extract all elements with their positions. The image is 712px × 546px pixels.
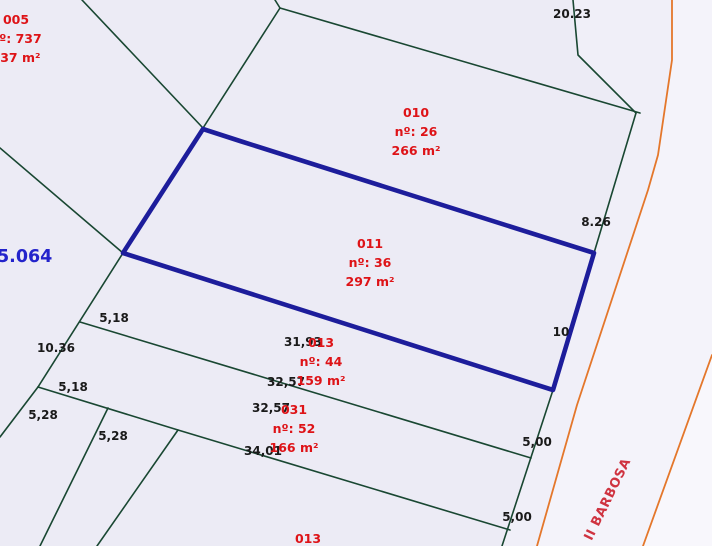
parcel-label-011[interactable]: 011nº: 36297 m²: [346, 234, 395, 291]
parcel-number: nº: 44: [297, 352, 346, 371]
parcel-label-013[interactable]: 013: [295, 529, 321, 546]
parcel-area: 266 m²: [392, 141, 441, 160]
measurement-label: 5,18: [58, 380, 88, 394]
parcel-number: nº: 737: [0, 29, 42, 48]
parcel-label-013[interactable]: 013nº: 44159 m²: [297, 333, 346, 390]
parcel-code: 013: [297, 333, 346, 352]
measurement-label: 5,28: [98, 429, 128, 443]
measurement-label: 20.23: [553, 7, 591, 21]
parcel-number: nº: 26: [392, 122, 441, 141]
measurement-label: 5,00: [502, 510, 532, 524]
parcel-number: nº: 36: [346, 253, 395, 272]
parcel-number: nº: 52: [270, 419, 319, 438]
parcel-code: 010: [392, 103, 441, 122]
map-labels-layer: 20.238.26105,1810.365,185,285,2831,9332,…: [0, 0, 712, 546]
measurement-label: 8.26: [581, 215, 611, 229]
map-canvas[interactable]: 20.238.26105,1810.365,185,285,2831,9332,…: [0, 0, 712, 546]
measurement-label: 5,18: [99, 311, 129, 325]
parcel-code: 005: [0, 10, 42, 29]
measurement-label: 10: [553, 325, 570, 339]
parcel-area: 297 m²: [346, 272, 395, 291]
measurement-label: 5,00: [522, 435, 552, 449]
parcel-label-010[interactable]: 010nº: 26266 m²: [392, 103, 441, 160]
parcel-code: 013: [295, 529, 321, 546]
measurement-label: 5,28: [28, 408, 58, 422]
measurement-label: 10.36: [37, 341, 75, 355]
parcel-code: 031: [270, 400, 319, 419]
parcel-area: 159 m²: [297, 371, 346, 390]
plan-number-label: 5.064: [0, 247, 52, 267]
parcel-area: 337 m²: [0, 48, 42, 67]
parcel-label-031[interactable]: 031nº: 52166 m²: [270, 400, 319, 457]
parcel-code: 011: [346, 234, 395, 253]
parcel-label-005[interactable]: 005nº: 737337 m²: [0, 10, 42, 67]
parcel-area: 166 m²: [270, 438, 319, 457]
